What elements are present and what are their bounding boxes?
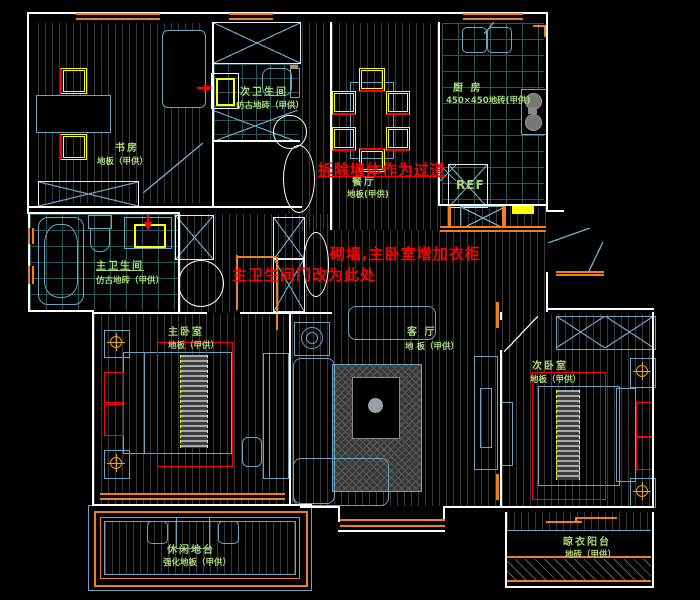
second-bath-label: 次卫生间 bbox=[240, 88, 288, 98]
study-wardrobe bbox=[38, 181, 139, 207]
annotation-build-wall: 砌墙,主卧室增加衣柜 bbox=[330, 247, 481, 262]
master-bedroom-label: 主卧室 bbox=[168, 328, 204, 338]
threshold-step bbox=[575, 517, 577, 523]
second-bath-basin bbox=[216, 78, 235, 106]
master-wardrobe bbox=[263, 353, 289, 479]
wall-segment bbox=[443, 506, 500, 508]
dining-chair bbox=[332, 127, 356, 151]
wall-segment bbox=[300, 506, 340, 508]
laundry-balcony-material: 地砖（甲供） bbox=[565, 551, 616, 560]
study-closet-diagonal bbox=[143, 143, 203, 193]
window bbox=[229, 13, 273, 20]
wall-segment bbox=[330, 22, 332, 230]
wall-segment bbox=[27, 206, 213, 208]
dining-label: 餐厅 bbox=[352, 178, 376, 188]
dining-chair bbox=[359, 68, 385, 92]
wall-segment bbox=[338, 530, 445, 532]
wall-segment bbox=[92, 504, 312, 506]
entry-door-leaf bbox=[548, 228, 590, 243]
window bbox=[76, 13, 160, 20]
dining-material: 地板(甲供) bbox=[347, 191, 389, 200]
wall-segment bbox=[92, 310, 94, 506]
entry-threshold bbox=[556, 271, 604, 276]
fridge-label: REF bbox=[456, 178, 485, 192]
wall-segment bbox=[505, 512, 507, 588]
wall-segment bbox=[28, 212, 30, 312]
second-bath-toilet-tank bbox=[290, 68, 300, 98]
wall-segment bbox=[505, 586, 654, 588]
wardrobe-rail bbox=[269, 353, 270, 477]
wall-segment bbox=[500, 350, 502, 508]
passage-window bbox=[440, 226, 546, 232]
pillow bbox=[104, 404, 124, 436]
bay-window bbox=[340, 519, 445, 527]
second-wardrobe-cell bbox=[556, 316, 605, 348]
floor-plan-canvas: REF bbox=[0, 0, 700, 600]
living-material: 地 板（甲供） bbox=[405, 343, 459, 352]
wall-segment bbox=[212, 206, 302, 208]
dining-chair bbox=[386, 127, 410, 151]
study-label: 书房 bbox=[115, 144, 139, 154]
wall-segment bbox=[440, 204, 546, 206]
wall-segment bbox=[178, 212, 180, 312]
wall-segment bbox=[240, 312, 332, 314]
door-frame-marker bbox=[448, 206, 451, 228]
door-frame-marker bbox=[502, 206, 505, 228]
master-bath-label: 主卫生间 bbox=[96, 262, 144, 272]
second-wardrobe-cell bbox=[605, 316, 654, 348]
dining-chair bbox=[332, 91, 356, 115]
master-bedroom-material: 地板（甲供） bbox=[168, 342, 219, 351]
lamp-icon bbox=[107, 333, 125, 351]
master-bath-material: 仿古地砖（甲供） bbox=[96, 277, 164, 286]
basin-arrow-tail bbox=[147, 214, 149, 222]
toilet-marker bbox=[290, 65, 298, 68]
study-chair bbox=[60, 134, 87, 160]
corridor-door-arc bbox=[283, 145, 315, 213]
pillow bbox=[104, 372, 124, 403]
balcony-stool bbox=[147, 521, 168, 544]
wall-opening-marker bbox=[496, 302, 499, 328]
stove-control bbox=[528, 107, 537, 114]
annotation-move-door: 主卫生间门改为此处 bbox=[232, 268, 376, 283]
wall-segment bbox=[500, 312, 502, 320]
second-bedroom-door-leaf bbox=[504, 316, 538, 352]
window-panel bbox=[501, 402, 513, 466]
sofa-seat bbox=[293, 458, 389, 506]
dining-chair bbox=[386, 91, 410, 115]
entry-closet bbox=[213, 22, 301, 64]
hall-door-arc bbox=[303, 232, 329, 297]
wall-segment bbox=[652, 312, 654, 508]
second-bed-blanket bbox=[556, 390, 580, 480]
window bbox=[28, 228, 34, 244]
second-bedroom-label: 次卧室 bbox=[532, 362, 568, 372]
annotation-demolish-wall: 拆除墙体作为过道 bbox=[318, 163, 446, 178]
window bbox=[463, 13, 523, 20]
window bbox=[100, 493, 285, 500]
master-toilet-tank bbox=[88, 215, 112, 229]
second-bath-door-arc bbox=[273, 115, 307, 149]
lamp-icon bbox=[107, 454, 125, 472]
study-chair bbox=[60, 68, 87, 94]
laundry-balcony-label: 晾衣阳台 bbox=[563, 538, 611, 548]
wall-segment bbox=[546, 210, 564, 212]
master-toilet bbox=[90, 228, 110, 252]
coffee-table-decor bbox=[368, 398, 383, 413]
leisure-balcony-material: 强化地板（甲供） bbox=[163, 559, 231, 568]
wall-segment bbox=[28, 212, 180, 214]
wall-segment bbox=[546, 12, 548, 212]
kitchen-material: 450×450地砖(甲供) bbox=[446, 97, 530, 106]
basin-arrow-icon bbox=[144, 222, 152, 231]
wall-segment bbox=[500, 506, 654, 508]
balcony-stool bbox=[218, 521, 239, 544]
wall-segment bbox=[546, 308, 654, 310]
laundry-rail bbox=[507, 580, 651, 582]
study-material: 地板（甲供） bbox=[97, 158, 148, 167]
laundry-balcony-floor bbox=[507, 559, 651, 580]
tv-screen bbox=[480, 388, 492, 448]
wall-segment bbox=[27, 12, 29, 214]
bedroom-bench bbox=[242, 437, 262, 467]
kitchen-label: 厨 房 bbox=[453, 84, 482, 94]
lamp-icon bbox=[633, 362, 651, 380]
wall-opening-marker bbox=[496, 474, 499, 500]
wall-segment bbox=[212, 140, 300, 142]
table-lamp-icon bbox=[306, 332, 318, 344]
kitchen-faucet bbox=[484, 22, 494, 34]
wall-segment bbox=[546, 272, 548, 312]
living-label: 客 厅 bbox=[407, 328, 436, 338]
second-bath-material: 仿古地砖（甲供） bbox=[236, 102, 304, 111]
shoe-bench bbox=[512, 206, 534, 214]
hall-closet bbox=[175, 215, 214, 260]
stove-burner bbox=[525, 114, 542, 131]
entry-door-leaf bbox=[588, 242, 603, 273]
window bbox=[28, 266, 34, 284]
wall-segment bbox=[28, 310, 94, 312]
study-bookcase bbox=[162, 30, 206, 108]
laundry-balcony-edge bbox=[507, 530, 651, 531]
wall-segment bbox=[652, 512, 654, 588]
wall-segment bbox=[212, 22, 214, 208]
threshold-step bbox=[575, 517, 617, 519]
master-bed-headboard bbox=[123, 352, 145, 454]
new-wall-marker bbox=[238, 256, 276, 258]
second-bed-headboard bbox=[616, 388, 636, 482]
lamp-icon bbox=[633, 482, 651, 500]
leisure-balcony-label: 休闲地台 bbox=[167, 546, 215, 556]
study-desk bbox=[36, 95, 111, 133]
wall-segment bbox=[289, 312, 291, 506]
wall-segment bbox=[92, 312, 207, 314]
hall-closet bbox=[273, 217, 305, 260]
second-bedroom-material: 地板（甲供） bbox=[530, 376, 581, 385]
bathtub-inner bbox=[44, 224, 78, 298]
master-bath-door-arc bbox=[178, 260, 224, 307]
master-bed-blanket bbox=[180, 355, 208, 448]
